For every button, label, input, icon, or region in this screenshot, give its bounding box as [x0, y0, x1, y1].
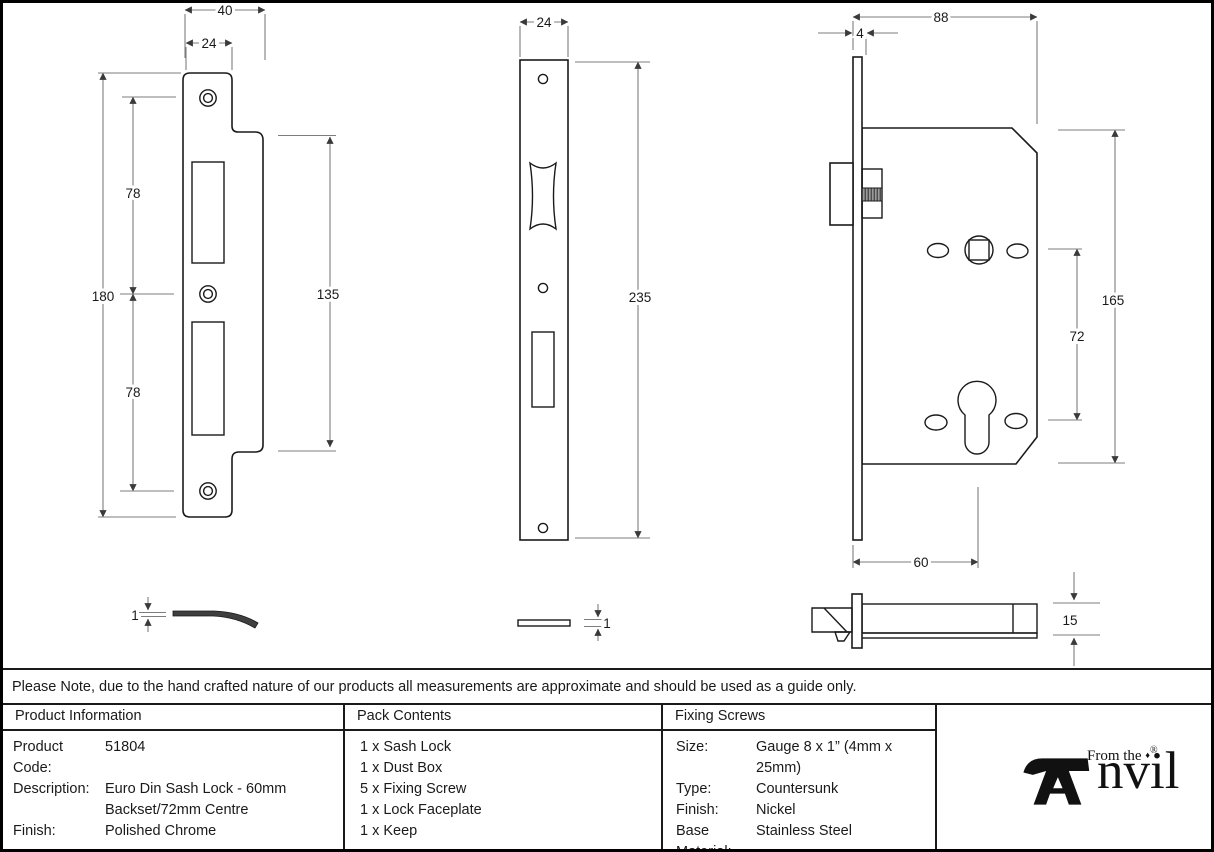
dim-keep-thickness-lines — [139, 597, 166, 632]
pack-item: 5 x Fixing Screw — [360, 779, 661, 800]
dim-lock-faceplate-thickness: 4 — [856, 26, 864, 41]
logo-wordmark: nvil — [1097, 745, 1179, 798]
latch-bolt-head — [830, 163, 853, 225]
dim-keep-width-inner: 24 — [201, 36, 217, 51]
lock-side-view — [812, 594, 1037, 648]
fixing-screws-header: Fixing Screws — [663, 705, 937, 731]
dim-faceplate-width: 24 — [536, 15, 552, 30]
product-information-body: Product Code: 51804 Description: Euro Di… — [3, 731, 345, 849]
spec-sheet: 40 24 180 — [0, 0, 1214, 852]
screw-size-value: Gauge 8 x 1” (4mm x 25mm) — [756, 737, 935, 779]
dim-lock-height: 165 — [1102, 293, 1125, 308]
faceplate-outline — [520, 60, 568, 540]
lock-body-outline — [862, 128, 1037, 464]
product-code-value: 51804 — [105, 737, 145, 779]
screw-type-row: Type: Countersunk — [676, 779, 935, 800]
dim-keep-height: 180 — [92, 289, 115, 304]
product-code-label: Product Code: — [13, 737, 105, 779]
dim-lock-centres: 72 — [1069, 329, 1084, 344]
brand-logo-cell: From the ♦® nvil — [937, 705, 1211, 849]
lock-side-latch-tab — [835, 632, 850, 641]
dim-lock-width: 88 — [933, 10, 948, 25]
pack-contents-body: 1 x Sash Lock 1 x Dust Box 5 x Fixing Sc… — [345, 731, 663, 849]
screw-finish-label: Finish: — [676, 800, 756, 821]
dim-keep-thickness: 1 — [131, 608, 139, 623]
description-row: Description: Euro Din Sash Lock - 60mm — [13, 779, 343, 800]
keep-plate-drawing: 40 24 180 — [92, 3, 340, 632]
keep-plate-outline — [183, 73, 263, 517]
description-value-line2: Backset/72mm Centre — [105, 800, 248, 821]
dim-faceplate-thickness: 1 — [603, 616, 611, 631]
latch-bolt-spring — [862, 188, 882, 201]
from-the-anvil-logo: From the ♦® nvil — [1017, 743, 1197, 813]
dim-keep-lip-height: 135 — [317, 287, 340, 302]
technical-drawing-area: 40 24 180 — [3, 3, 1211, 668]
faceplate-drawing: 24 235 1 — [518, 15, 651, 641]
screw-type-value: Countersunk — [756, 779, 838, 800]
lock-technical-drawing: 40 24 180 — [3, 3, 1211, 668]
disclaimer-text: Please Note, due to the hand crafted nat… — [12, 679, 856, 695]
faceplate-side-view — [518, 620, 570, 626]
lock-side-latch — [812, 608, 852, 632]
measurement-disclaimer: Please Note, due to the hand crafted nat… — [3, 668, 1211, 705]
pack-contents-header: Pack Contents — [345, 705, 663, 731]
description-value-line1: Euro Din Sash Lock - 60mm — [105, 779, 286, 800]
lock-body-drawing: 88 4 165 — [812, 10, 1125, 666]
fixing-screws-body: Size: Gauge 8 x 1” (4mm x 25mm) Type: Co… — [663, 731, 937, 849]
screw-material-label: Base Material: — [676, 821, 756, 849]
finish-label: Finish: — [13, 821, 105, 842]
dim-lock-backset: 60 — [913, 555, 928, 570]
pack-item: 1 x Keep — [360, 821, 661, 842]
product-information-header: Product Information — [3, 705, 345, 731]
screw-type-label: Type: — [676, 779, 756, 800]
keep-side-view — [173, 611, 258, 628]
product-code-row: Product Code: 51804 — [13, 737, 343, 779]
lock-side-bottom-plate — [853, 633, 1037, 638]
dim-lock-case-depth: 15 — [1062, 613, 1077, 628]
product-info-table: Product Information Pack Contents Fixing… — [3, 705, 1211, 849]
screw-finish-row: Finish: Nickel — [676, 800, 935, 821]
finish-value: Polished Chrome — [105, 821, 216, 842]
description-label-spacer — [13, 800, 105, 821]
screw-finish-value: Nickel — [756, 800, 795, 821]
screw-material-row: Base Material: Stainless Steel — [676, 821, 935, 849]
dim-keep-top-segment: 78 — [125, 186, 140, 201]
lock-faceplate-bar — [853, 57, 862, 540]
screw-size-row: Size: Gauge 8 x 1” (4mm x 25mm) — [676, 737, 935, 779]
pack-item: 1 x Sash Lock — [360, 737, 661, 758]
description-label: Description: — [13, 779, 105, 800]
dim-faceplate-height: 235 — [629, 290, 652, 305]
lock-side-body — [862, 604, 1037, 633]
screw-material-value: Stainless Steel — [756, 821, 852, 849]
dim-keep-width-outer: 40 — [217, 3, 232, 18]
lock-side-faceplate — [852, 594, 862, 648]
pack-item: 1 x Dust Box — [360, 758, 661, 779]
description-row-continued: Backset/72mm Centre — [13, 800, 343, 821]
lock-side-latch-bevel — [824, 608, 847, 632]
dim-keep-bottom-segment: 78 — [125, 385, 140, 400]
pack-item: 1 x Lock Faceplate — [360, 800, 661, 821]
screw-size-label: Size: — [676, 737, 756, 779]
finish-row: Finish: Polished Chrome — [13, 821, 343, 842]
